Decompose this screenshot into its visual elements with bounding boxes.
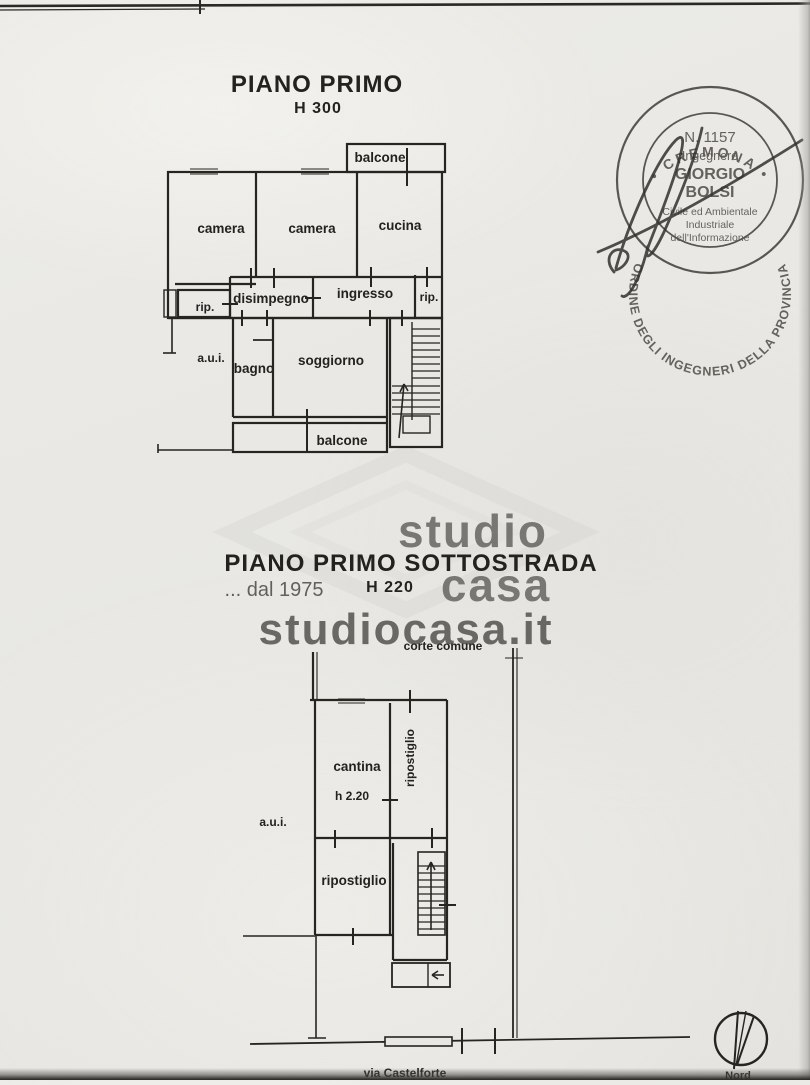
room-label-cucina: cucina bbox=[379, 218, 422, 233]
room-label-balcone-bottom: balcone bbox=[316, 433, 368, 448]
stair-up-arrow-plan2 bbox=[427, 862, 435, 930]
page-edge-shadow-bottom bbox=[0, 1068, 810, 1080]
plan2-height-label: H 220 bbox=[366, 579, 414, 596]
room-label-soggiorno: soggiorno bbox=[298, 353, 364, 368]
label-cantina-height: h 2.20 bbox=[335, 789, 369, 803]
plan2-title: PIANO PRIMO SOTTOSTRADA bbox=[224, 550, 597, 577]
room-label-bagno: bagno bbox=[234, 361, 275, 376]
room-label-balcone-top: balcone bbox=[354, 150, 406, 165]
room-label-disimpegno: disimpegno bbox=[233, 291, 309, 306]
label-aui-plan1: a.u.i. bbox=[197, 351, 224, 365]
top-page-rule bbox=[0, 0, 810, 14]
stamp-section-3: dell'Informazione bbox=[670, 232, 749, 244]
scanned-floorplan-document: { "titles": { "plan1": "PIANO PRIMO", "p… bbox=[0, 0, 810, 1080]
compass-nord bbox=[715, 1011, 767, 1069]
room-label-camera-mid: camera bbox=[288, 221, 336, 236]
room-label-rip-left: rip. bbox=[196, 300, 215, 314]
plan2-walls bbox=[243, 648, 523, 1038]
room-label-ingresso: ingresso bbox=[337, 286, 393, 301]
engineer-stamp: ORDINE DEGLI INGEGNERI DELLA PROVINCIA •… bbox=[617, 87, 803, 379]
label-corte-comune: corte comune bbox=[404, 639, 483, 653]
page-edge-shadow-right bbox=[798, 0, 810, 1080]
svg-text:ORDINE DEGLI INGEGNERI DELLA P: ORDINE DEGLI INGEGNERI DELLA PROVINCIA bbox=[626, 261, 794, 378]
room-label-ripostiglio-side: ripostiglio bbox=[403, 729, 417, 787]
stamp-ring-text: ORDINE DEGLI INGEGNERI DELLA PROVINCIA bbox=[626, 261, 794, 378]
stamp-role: Ingegnere bbox=[682, 149, 738, 163]
room-label-cantina: cantina bbox=[333, 759, 381, 774]
plan1-staircase bbox=[390, 318, 442, 447]
room-label-rip-right: rip. bbox=[420, 290, 439, 304]
plan2-door-ticks bbox=[335, 690, 456, 945]
stamp-number: N. 1157 bbox=[684, 129, 735, 146]
plan1-title: PIANO PRIMO bbox=[231, 71, 403, 98]
room-label-ripostiglio-lower: ripostiglio bbox=[321, 873, 386, 888]
label-aui-plan2: a.u.i. bbox=[259, 815, 286, 829]
stamp-section-1: Civile ed Ambientale bbox=[662, 206, 757, 218]
stamp-section-2: Industriale bbox=[686, 219, 735, 231]
floorplan-drawing: studio casa ... dal 1975 studiocasa.it P… bbox=[0, 0, 810, 1080]
room-label-camera-left: camera bbox=[197, 221, 245, 236]
door-arrow-plan2 bbox=[432, 971, 444, 979]
plan1-height-label: H 300 bbox=[294, 100, 342, 117]
watermark-since: ... dal 1975 bbox=[225, 579, 324, 601]
